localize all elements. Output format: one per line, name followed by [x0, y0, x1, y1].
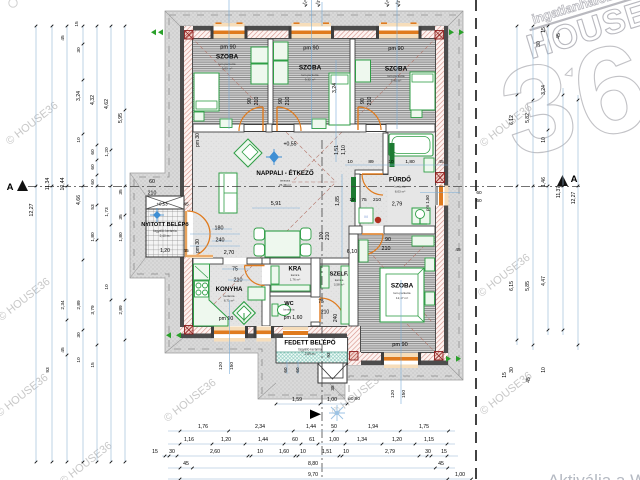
- svg-text:lam.parketta: lam.parketta: [393, 291, 410, 295]
- svg-text:53: 53: [90, 204, 96, 210]
- svg-text:5,85: 5,85: [525, 281, 531, 291]
- svg-text:210: 210: [373, 197, 381, 203]
- svg-text:210: 210: [285, 97, 291, 106]
- svg-text:1,80: 1,80: [90, 232, 96, 242]
- svg-text:93: 93: [45, 367, 51, 373]
- svg-text:10: 10: [343, 449, 349, 455]
- svg-text:1,00: 1,00: [455, 472, 465, 478]
- svg-text:1,44: 1,44: [258, 437, 268, 443]
- svg-text:45: 45: [438, 461, 444, 467]
- svg-text:1,73: 1,73: [104, 207, 110, 217]
- svg-text:3,24: 3,24: [332, 83, 338, 93]
- svg-text:1,16: 1,16: [184, 437, 194, 443]
- svg-text:1,44: 1,44: [306, 424, 316, 430]
- svg-text:60: 60: [295, 367, 300, 373]
- svg-text:60: 60: [476, 198, 482, 204]
- svg-text:SZELF.: SZELF.: [330, 272, 349, 278]
- svg-text:1,80: 1,80: [405, 159, 415, 165]
- svg-text:kerámia: kerámia: [223, 294, 234, 298]
- svg-text:30: 30: [425, 449, 431, 455]
- svg-text:1,46: 1,46: [541, 177, 547, 187]
- svg-text:8,71 m²: 8,71 m²: [224, 299, 235, 303]
- svg-text:15: 15: [90, 362, 96, 368]
- svg-text:5,82: 5,82: [525, 113, 531, 123]
- svg-text:35: 35: [118, 214, 124, 220]
- svg-text:2,34: 2,34: [60, 300, 66, 310]
- svg-text:pm 90: pm 90: [392, 342, 408, 348]
- svg-text:3,24: 3,24: [541, 85, 547, 95]
- svg-text:SZOBA: SZOBA: [385, 66, 408, 73]
- svg-text:90: 90: [385, 237, 391, 243]
- svg-text:9,46 m²: 9,46 m²: [391, 79, 402, 83]
- svg-text:11,34: 11,34: [45, 178, 51, 191]
- svg-text:90: 90: [278, 98, 284, 104]
- svg-text:4,62: 4,62: [104, 99, 110, 109]
- svg-text:lam.parketta: lam.parketta: [387, 74, 404, 78]
- svg-text:1,20: 1,20: [104, 147, 110, 157]
- svg-text:90: 90: [360, 98, 366, 104]
- svg-text:1,20: 1,20: [160, 248, 170, 254]
- svg-text:pm 1,60: pm 1,60: [284, 315, 303, 321]
- svg-text:15: 15: [74, 21, 80, 27]
- svg-text:5,91: 5,91: [271, 201, 282, 207]
- svg-text:60: 60: [90, 179, 96, 185]
- svg-text:SZOBA: SZOBA: [391, 283, 414, 290]
- svg-text:A: A: [7, 182, 14, 193]
- svg-text:75: 75: [361, 197, 367, 203]
- svg-text:12,27: 12,27: [29, 203, 35, 216]
- svg-text:45: 45: [438, 159, 444, 165]
- svg-text:terasza: terasza: [280, 179, 290, 183]
- svg-text:lam.parketta: lam.parketta: [218, 62, 235, 66]
- svg-text:9,70: 9,70: [308, 472, 318, 478]
- svg-text:120: 120: [390, 390, 396, 398]
- svg-text:kamra: kamra: [335, 278, 344, 282]
- svg-text:30: 30: [536, 41, 542, 47]
- svg-text:15: 15: [152, 449, 158, 455]
- svg-text:210: 210: [254, 97, 260, 106]
- svg-text:pm 30: pm 30: [195, 133, 201, 147]
- svg-text:NAPPALI - ÉTKEZŐ: NAPPALI - ÉTKEZŐ: [256, 169, 313, 177]
- svg-text:fagyálló kerámia: fagyálló kerámia: [298, 348, 321, 352]
- svg-text:1,00: 1,00: [329, 437, 339, 443]
- svg-text:2,89: 2,89: [118, 305, 124, 315]
- svg-text:30: 30: [76, 332, 82, 338]
- svg-text:+0,53: +0,53: [156, 202, 168, 207]
- svg-text:2,40 m²: 2,40 m²: [160, 234, 171, 238]
- svg-text:pm 1,50: pm 1,50: [425, 195, 430, 211]
- svg-text:2,79: 2,79: [385, 449, 395, 455]
- svg-text:45: 45: [556, 33, 562, 39]
- svg-text:1,10: 1,10: [341, 145, 347, 155]
- svg-text:6,10: 6,10: [347, 249, 358, 255]
- svg-text:10,44: 10,44: [60, 177, 66, 190]
- svg-text:10: 10: [541, 367, 547, 373]
- svg-text:30: 30: [169, 449, 175, 455]
- svg-text:fagyálló kerámia: fagyálló kerámia: [153, 229, 176, 233]
- svg-text:150: 150: [229, 362, 235, 370]
- svg-text:1,34: 1,34: [357, 437, 367, 443]
- svg-text:2,34: 2,34: [255, 424, 265, 430]
- svg-text:240: 240: [333, 314, 339, 323]
- svg-text:1,76 m²: 1,76 m²: [290, 278, 301, 282]
- svg-text:35: 35: [118, 189, 124, 195]
- svg-text:1,51: 1,51: [334, 145, 340, 155]
- svg-text:10: 10: [257, 449, 263, 455]
- svg-text:45: 45: [60, 347, 66, 353]
- svg-text:FÜRDŐ: FÜRDŐ: [389, 177, 411, 184]
- svg-text:45: 45: [183, 202, 189, 208]
- svg-text:50: 50: [331, 424, 337, 430]
- svg-text:210: 210: [148, 191, 157, 197]
- svg-text:8,03 m²: 8,03 m²: [395, 190, 406, 194]
- svg-text:90: 90: [247, 98, 253, 104]
- svg-text:75: 75: [318, 299, 324, 305]
- svg-text:1,59: 1,59: [292, 397, 302, 403]
- svg-text:75: 75: [232, 267, 238, 273]
- svg-text:1,20: 1,20: [392, 437, 402, 443]
- svg-text:10: 10: [76, 137, 82, 143]
- svg-text:10: 10: [76, 357, 82, 363]
- svg-text:6,12: 6,12: [509, 115, 515, 125]
- svg-text:10: 10: [541, 137, 547, 143]
- svg-text:M: M: [364, 214, 367, 219]
- svg-text:60: 60: [90, 164, 96, 170]
- svg-text:45: 45: [455, 247, 461, 253]
- svg-text:60: 60: [476, 190, 482, 196]
- svg-text:3,79: 3,79: [90, 305, 96, 315]
- svg-text:210: 210: [234, 278, 243, 284]
- svg-text:120: 120: [218, 362, 224, 370]
- svg-text:SZOBA: SZOBA: [216, 54, 239, 61]
- svg-text:210: 210: [382, 246, 391, 252]
- svg-text:15: 15: [502, 372, 508, 378]
- svg-text:1,94: 1,94: [368, 424, 378, 430]
- svg-text:kamra: kamra: [291, 273, 300, 277]
- svg-text:KRA: KRA: [289, 267, 303, 273]
- svg-text:pm 90: pm 90: [219, 316, 234, 322]
- svg-text:61: 61: [309, 437, 315, 443]
- svg-text:1,60: 1,60: [279, 449, 289, 455]
- svg-text:1,20: 1,20: [221, 437, 231, 443]
- svg-text:12,47 m²: 12,47 m²: [396, 296, 408, 300]
- svg-text:210: 210: [367, 97, 373, 106]
- svg-text:WC: WC: [284, 301, 293, 307]
- svg-text:2,70: 2,70: [224, 250, 235, 256]
- svg-text:60: 60: [292, 437, 298, 443]
- svg-text:1,75: 1,75: [419, 424, 429, 430]
- svg-text:45: 45: [60, 35, 66, 41]
- svg-text:A: A: [571, 174, 578, 185]
- svg-text:8,80: 8,80: [308, 461, 318, 467]
- svg-text:10: 10: [104, 284, 110, 290]
- svg-text:3,58 m²: 3,58 m²: [334, 283, 345, 287]
- svg-text:pm 90: pm 90: [303, 46, 319, 52]
- svg-text:ø0,90: ø0,90: [348, 396, 360, 401]
- svg-text:9,32 m²: 9,32 m²: [305, 78, 316, 82]
- svg-text:210: 210: [325, 232, 331, 241]
- svg-text:30: 30: [509, 367, 515, 373]
- svg-text:lam.parketta: lam.parketta: [301, 73, 318, 77]
- svg-text:KONYHA: KONYHA: [216, 286, 243, 293]
- svg-text:pm 30: pm 30: [195, 239, 201, 253]
- svg-text:2,89: 2,89: [76, 300, 82, 310]
- svg-text:93: 93: [326, 352, 331, 358]
- svg-text:+0,55: +0,55: [283, 142, 296, 148]
- svg-text:1,15: 1,15: [424, 437, 434, 443]
- svg-text:10: 10: [388, 159, 394, 165]
- svg-text:9,03 m²: 9,03 m²: [222, 67, 233, 71]
- svg-text:FEDETT BELÉPŐ: FEDETT BELÉPŐ: [284, 339, 335, 347]
- svg-text:60: 60: [149, 179, 155, 185]
- svg-text:35: 35: [330, 385, 335, 391]
- svg-text:1,76: 1,76: [198, 424, 208, 430]
- svg-text:kerámia: kerámia: [283, 308, 294, 312]
- svg-text:pm 90: pm 90: [388, 46, 404, 52]
- svg-text:10: 10: [347, 159, 353, 165]
- svg-text:10: 10: [349, 197, 355, 203]
- svg-text:15: 15: [441, 449, 447, 455]
- svg-text:3,24: 3,24: [76, 91, 82, 101]
- svg-text:11,37: 11,37: [556, 186, 562, 198]
- svg-text:45: 45: [526, 377, 532, 383]
- svg-text:60: 60: [283, 367, 288, 373]
- svg-text:2,89 m²: 2,89 m²: [305, 352, 316, 356]
- svg-text:180: 180: [215, 226, 224, 232]
- svg-text:150: 150: [401, 390, 407, 398]
- svg-text:1,51: 1,51: [322, 449, 332, 455]
- svg-text:10: 10: [300, 449, 306, 455]
- svg-text:2,79: 2,79: [392, 202, 403, 208]
- svg-text:15: 15: [541, 27, 547, 33]
- svg-text:2,60: 2,60: [210, 449, 220, 455]
- svg-text:pm 90: pm 90: [220, 45, 236, 51]
- svg-text:240: 240: [216, 238, 225, 244]
- svg-text:60: 60: [90, 149, 96, 155]
- svg-text:4,47: 4,47: [541, 276, 547, 286]
- svg-text:1,80: 1,80: [118, 232, 124, 242]
- svg-text:4,66: 4,66: [76, 195, 82, 205]
- svg-text:1,00: 1,00: [327, 397, 337, 403]
- svg-text:45: 45: [183, 461, 189, 467]
- svg-text:4,32: 4,32: [90, 95, 96, 105]
- svg-text:12,27: 12,27: [571, 192, 577, 205]
- svg-text:30: 30: [76, 47, 82, 53]
- svg-text:1,85: 1,85: [335, 196, 341, 206]
- svg-text:5,95: 5,95: [118, 113, 124, 123]
- svg-text:6,15: 6,15: [509, 281, 515, 291]
- svg-text:45: 45: [183, 248, 189, 254]
- svg-text:SZOBA: SZOBA: [299, 65, 322, 72]
- svg-text:Aktiválja a W: Aktiválja a W: [548, 471, 640, 480]
- svg-text:89: 89: [368, 159, 374, 165]
